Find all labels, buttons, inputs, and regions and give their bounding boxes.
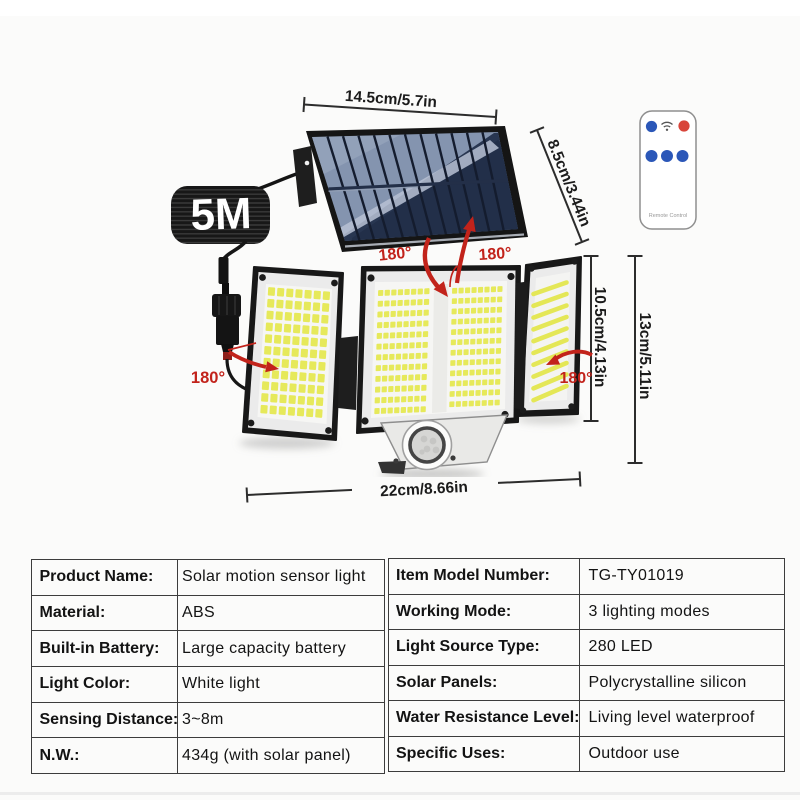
svg-text:180°: 180° [559,370,592,387]
svg-text:13cm/5.11in: 13cm/5.11in [636,312,653,399]
svg-text:180°: 180° [191,369,225,387]
svg-text:5M: 5M [190,189,253,240]
svg-text:10.5cm/4.13in: 10.5cm/4.13in [591,287,608,388]
svg-text:180°: 180° [478,245,512,264]
svg-text:22cm/8.66in: 22cm/8.66in [380,479,469,501]
svg-text:8.5cm/3.44in: 8.5cm/3.44in [543,137,593,229]
svg-text:180°: 180° [378,244,413,264]
svg-text:Remote Control: Remote Control [649,213,688,219]
